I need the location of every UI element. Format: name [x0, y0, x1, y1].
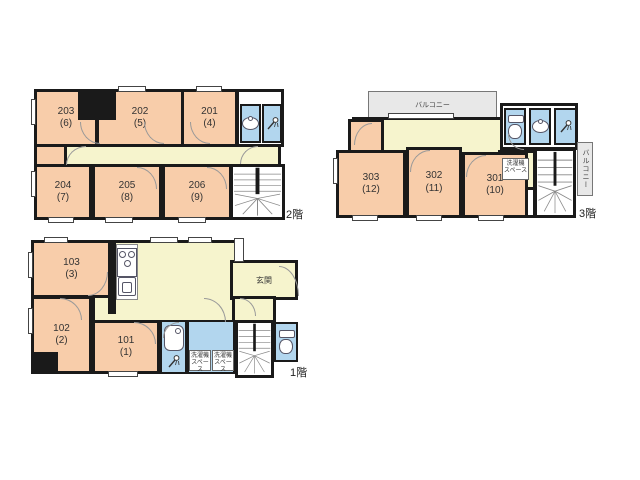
window: [105, 217, 133, 223]
room-206-alias: (9): [189, 192, 206, 205]
laundry-label-line2: スペース: [503, 168, 528, 175]
room-204-number: 204: [55, 180, 72, 193]
kitchen-counter: [116, 244, 138, 300]
room-204: 204 (7): [34, 164, 92, 220]
room-303: 303 (12): [336, 150, 406, 218]
laundry-space-b: 洗濯機 スペース: [212, 350, 234, 371]
shower-icon: [166, 354, 181, 369]
stove-icon: [117, 248, 137, 277]
washbasin-room-3f: [529, 108, 551, 145]
balcony-3f-side: バルコニー: [577, 142, 593, 196]
room-205-alias: (8): [119, 192, 136, 205]
kitchen-sink-icon: [118, 277, 136, 296]
laundry-label-line2: スペース: [213, 360, 233, 374]
room-201-number: 201: [201, 106, 218, 119]
staircase-icon: [537, 151, 573, 215]
washbasin-icon: [242, 117, 259, 130]
staircase-icon: [233, 167, 282, 217]
laundry-space-a: 洗濯機 スペース: [189, 350, 211, 371]
room-203-alias: (6): [58, 118, 75, 131]
window: [48, 217, 74, 223]
building-step-1f: [31, 352, 58, 374]
room-204-alias: (7): [55, 192, 72, 205]
room-103-label: 103 (3): [63, 257, 80, 282]
toilet-icon: [279, 330, 293, 354]
window: [352, 215, 378, 221]
shower-icon: [558, 119, 573, 134]
shower-room-3f: [554, 108, 577, 145]
floor-label-1f: 1階: [290, 364, 307, 380]
room-101-label: 101 (1): [118, 335, 135, 360]
room-203-number: 203: [58, 106, 75, 119]
room-103-number: 103: [63, 257, 80, 270]
window: [416, 215, 442, 221]
room-102-label: 102 (2): [53, 323, 70, 348]
room-103-alias: (3): [63, 269, 80, 282]
room-101-alias: (1): [118, 347, 135, 360]
window: [196, 86, 222, 92]
room-101-number: 101: [118, 335, 135, 348]
kitchen-wall: [108, 240, 116, 314]
room-303-alias: (12): [362, 184, 380, 197]
staircase-3f: [534, 148, 576, 218]
window: [150, 237, 178, 243]
window: [31, 171, 36, 197]
room-303-number: 303: [362, 172, 380, 185]
room-203-label: 203 (6): [58, 106, 75, 131]
balcony-label: バルコニー: [415, 100, 450, 110]
floorplan-canvas: 203 (6) 202 (5) 201 (4) 204 (7): [0, 0, 640, 480]
laundry-label-line2: スペース: [190, 360, 210, 374]
room-204-label: 204 (7): [55, 180, 72, 205]
room-205-number: 205: [119, 180, 136, 193]
staircase-icon: [238, 323, 271, 375]
room-302-label: 302 (11): [425, 170, 442, 195]
washbasin-icon: [532, 120, 549, 133]
window: [178, 217, 206, 223]
washbasin-room-2f: [240, 104, 261, 143]
window: [28, 308, 33, 334]
room-205: 205 (8): [92, 164, 162, 220]
shower-room-2f: [262, 104, 282, 143]
room-206-number: 206: [189, 180, 206, 193]
room-303-label: 303 (12): [362, 172, 380, 197]
room-102-alias: (2): [53, 335, 70, 348]
window: [28, 252, 33, 278]
window: [333, 158, 338, 184]
window: [108, 371, 138, 377]
room-302-alias: (11): [425, 183, 442, 196]
window: [31, 99, 36, 125]
room-206-label: 206 (9): [189, 180, 206, 205]
window: [118, 86, 146, 92]
shower-icon: [265, 116, 280, 131]
window: [388, 113, 454, 119]
room-205-label: 205 (8): [119, 180, 136, 205]
staircase-2f: [230, 164, 285, 220]
window: [478, 215, 504, 221]
room-102-number: 102: [53, 323, 70, 336]
window: [188, 237, 212, 243]
floor-label-2f: 2階: [286, 206, 303, 222]
building-notch-2f: [78, 89, 116, 120]
room-202-number: 202: [132, 106, 149, 119]
room-301-alias: (10): [486, 185, 504, 198]
laundry-space-3f: 洗濯機 スペース: [502, 158, 529, 180]
window: [234, 238, 244, 262]
balcony-label: バルコニー: [580, 149, 590, 189]
window: [44, 237, 68, 243]
toilet-room-1f: [274, 322, 298, 362]
room-206: 206 (9): [162, 164, 232, 220]
staircase-1f: [235, 320, 274, 378]
floor-label-3f: 3階: [579, 205, 596, 221]
